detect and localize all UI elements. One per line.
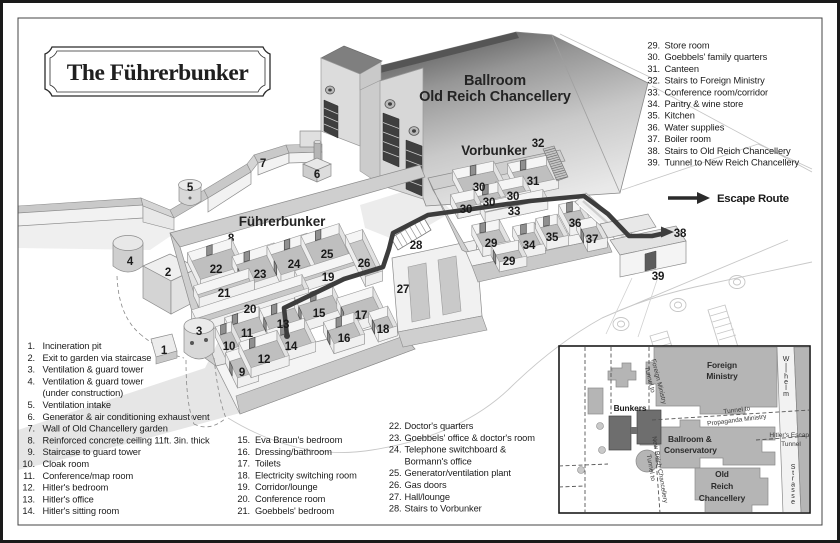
svg-text:Goebbels' office & doctor's ro: Goebbels' office & doctor's room [405,433,536,443]
svg-text:Old Reich Chancellery: Old Reich Chancellery [419,89,571,105]
svg-text:16.: 16. [237,447,250,457]
svg-text:9.: 9. [27,447,35,457]
svg-text:Stairs to Vorbunker: Stairs to Vorbunker [405,504,482,514]
svg-text:29: 29 [485,238,498,250]
svg-text:5: 5 [187,182,194,194]
svg-text:33.: 33. [647,87,660,97]
svg-text:9: 9 [239,367,245,379]
svg-text:2: 2 [165,267,171,279]
svg-text:22: 22 [210,264,223,276]
svg-text:Exit to garden via staircase: Exit to garden via staircase [43,353,152,363]
svg-text:12.: 12. [22,483,35,493]
svg-text:37.: 37. [647,134,660,144]
svg-text:Ventilation intake: Ventilation intake [43,400,112,410]
svg-text:Kitchen: Kitchen [665,111,695,121]
svg-text:19: 19 [322,272,335,284]
svg-text:Conference room: Conference room [255,494,326,504]
svg-text:4: 4 [127,256,134,268]
svg-text:38.: 38. [647,146,660,156]
svg-text:30.: 30. [647,52,660,62]
svg-text:Conference room/corridor: Conference room/corridor [665,87,769,97]
svg-text:Ballroom: Ballroom [464,73,526,89]
svg-text:Reinforced concrete ceiling 11: Reinforced concrete ceiling 11ft. 3in. t… [43,435,210,445]
svg-text:e: e [791,499,795,506]
svg-text:Electricity switching room: Electricity switching room [255,470,357,480]
svg-text:25: 25 [321,249,334,261]
svg-text:27: 27 [397,284,410,296]
svg-text:30: 30 [460,204,473,216]
svg-text:38: 38 [674,228,687,240]
svg-text:Stairs to Old Reich Chanceller: Stairs to Old Reich Chancellery [665,146,792,156]
svg-text:26: 26 [358,258,371,270]
svg-text:39: 39 [652,271,665,283]
svg-text:28: 28 [410,240,423,252]
svg-text:23.: 23. [389,433,402,443]
svg-text:33: 33 [508,206,521,218]
svg-text:31: 31 [527,176,540,188]
svg-text:Eva Braun's bedroom: Eva Braun's bedroom [255,435,343,445]
svg-text:3: 3 [196,326,202,338]
svg-text:36.: 36. [647,122,660,132]
svg-text:Vorbunker: Vorbunker [461,143,527,158]
svg-text:Dressing/bathroom: Dressing/bathroom [255,447,332,457]
svg-text:Water supplies: Water supplies [665,122,725,132]
svg-text:Doctor's quarters: Doctor's quarters [405,421,474,431]
svg-text:Incineration pit: Incineration pit [43,341,102,351]
svg-text:Stairs to Foreign Ministry: Stairs to Foreign Ministry [665,76,766,86]
svg-text:39.: 39. [647,158,660,168]
svg-text:32: 32 [532,138,545,150]
svg-text:37: 37 [586,234,599,246]
svg-text:Ballroom &: Ballroom & [668,434,712,444]
svg-text:(under construction): (under construction) [43,388,124,398]
svg-text:19.: 19. [237,482,250,492]
svg-text:4.: 4. [27,376,35,386]
svg-text:32.: 32. [647,76,660,86]
svg-text:36: 36 [569,218,582,230]
svg-text:Ventilation & guard tower: Ventilation & guard tower [43,376,144,386]
svg-text:Ventilation & guard tower: Ventilation & guard tower [43,365,144,375]
svg-text:Generator/ventilation plant: Generator/ventilation plant [405,468,512,478]
svg-text:10: 10 [223,341,236,353]
svg-text:Hall/lounge: Hall/lounge [405,492,450,502]
svg-text:14: 14 [285,341,298,353]
svg-text:20: 20 [244,304,257,316]
svg-text:Staircase to guard tower: Staircase to guard tower [43,447,141,457]
svg-text:Bunkers: Bunkers [614,403,647,413]
svg-text:1: 1 [161,345,168,357]
svg-text:Reich: Reich [711,481,733,491]
svg-text:Toilets: Toilets [255,459,281,469]
svg-text:25.: 25. [389,468,402,478]
svg-text:13: 13 [277,319,290,331]
svg-text:35.: 35. [647,111,660,121]
svg-text:Hitler's office: Hitler's office [43,494,94,504]
svg-text:Telephone switchboard &: Telephone switchboard & [405,445,507,455]
svg-text:Gas doors: Gas doors [405,480,447,490]
svg-text:Bormann's office: Bormann's office [405,456,472,466]
svg-text:18: 18 [377,324,390,336]
svg-text:Conservatory: Conservatory [664,445,717,455]
svg-text:Hitler's bedroom: Hitler's bedroom [43,483,109,493]
svg-text:21.: 21. [237,506,250,516]
svg-text:11.: 11. [23,471,35,481]
svg-text:Chancellery: Chancellery [699,493,746,503]
svg-text:Corridor/lounge: Corridor/lounge [255,482,318,492]
svg-text:34: 34 [523,240,536,252]
svg-text:Pantry & wine store: Pantry & wine store [665,99,744,109]
svg-text:Wall of Old Chancellery garden: Wall of Old Chancellery garden [43,424,168,434]
svg-text:17.: 17. [237,459,250,469]
svg-text:Goebbels' bedroom: Goebbels' bedroom [255,506,335,516]
svg-text:Generator & air conditioning e: Generator & air conditioning exhaust ven… [43,412,210,422]
svg-text:22.: 22. [389,421,402,431]
svg-text:Store room: Store room [665,41,710,51]
svg-text:8.: 8. [27,435,35,445]
svg-text:30: 30 [507,191,520,203]
svg-text:6: 6 [314,169,320,181]
svg-text:Hitler's Escape: Hitler's Escape [769,432,813,439]
svg-text:30: 30 [473,182,486,194]
svg-text:26.: 26. [389,480,402,490]
svg-text:27.: 27. [389,492,402,502]
svg-text:15.: 15. [237,435,250,445]
svg-text:Führerbunker: Führerbunker [239,214,326,229]
svg-text:Boiler room: Boiler room [665,134,712,144]
svg-text:23: 23 [254,269,267,281]
svg-text:35: 35 [546,232,559,244]
svg-text:Escape Route: Escape Route [717,193,789,205]
svg-text:18.: 18. [237,470,250,480]
svg-text:Canteen: Canteen [665,64,699,74]
svg-text:Old: Old [715,469,729,479]
svg-text:29: 29 [503,256,516,268]
svg-text:3.: 3. [27,365,35,375]
svg-text:21: 21 [218,288,231,300]
svg-text:12: 12 [258,354,271,366]
svg-text:20.: 20. [237,494,250,504]
svg-text:14.: 14. [22,506,35,516]
svg-text:5.: 5. [27,400,35,410]
svg-text:24: 24 [288,259,301,271]
svg-text:7: 7 [260,158,266,170]
svg-text:16: 16 [338,333,351,345]
svg-text:m: m [783,391,789,398]
svg-text:28.: 28. [389,504,402,514]
svg-text:Cloak room: Cloak room [43,459,90,469]
svg-text:13.: 13. [22,494,35,504]
svg-text:24.: 24. [389,445,402,455]
svg-text:Conference/map room: Conference/map room [43,471,134,481]
svg-text:34.: 34. [647,99,660,109]
svg-text:31.: 31. [647,64,660,74]
svg-text:30: 30 [483,197,496,209]
svg-text:7.: 7. [27,424,35,434]
svg-text:10.: 10. [22,459,35,469]
svg-text:29.: 29. [647,41,660,51]
svg-text:Goebbels' family quarters: Goebbels' family quarters [665,52,768,62]
svg-text:The Führerbunker: The Führerbunker [67,60,249,86]
svg-text:Ministry: Ministry [706,371,738,381]
svg-text:11: 11 [241,328,254,340]
svg-text:Hitler's sitting room: Hitler's sitting room [43,506,120,516]
svg-text:Tunnel to New Reich Chanceller: Tunnel to New Reich Chancellery [665,158,800,168]
svg-text:1.: 1. [27,341,35,351]
svg-text:6.: 6. [27,412,35,422]
svg-text:17: 17 [355,310,368,322]
svg-text:15: 15 [313,308,326,320]
svg-text:2.: 2. [27,353,35,363]
svg-text:Foreign: Foreign [707,360,737,370]
svg-text:Tunnel: Tunnel [781,441,801,448]
